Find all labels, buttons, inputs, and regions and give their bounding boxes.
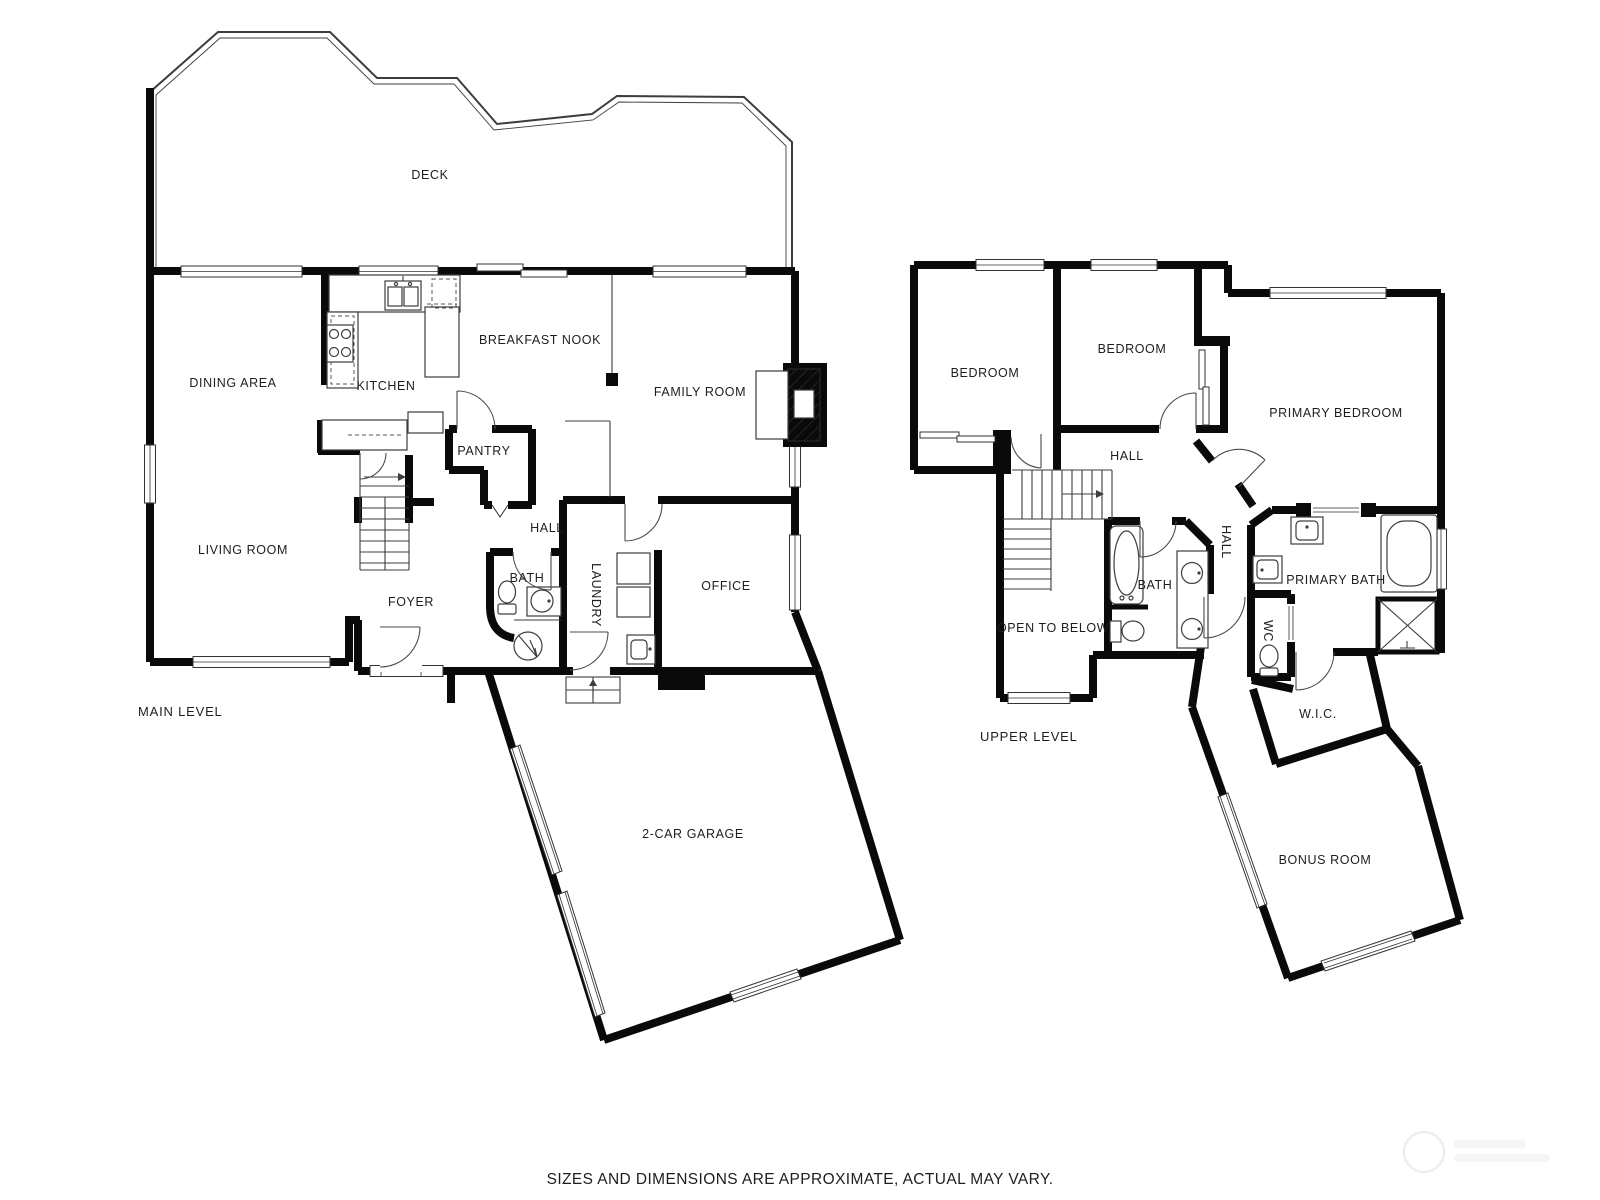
room-label-open-to-below: OPEN TO BELOW bbox=[997, 621, 1109, 635]
room-label-office: OFFICE bbox=[701, 579, 750, 593]
window-bonus-bottom bbox=[1321, 931, 1415, 971]
footer-disclaimer: SIZES AND DIMENSIONS ARE APPROXIMATE, AC… bbox=[547, 1171, 1054, 1188]
main-level-walls bbox=[146, 88, 900, 1040]
window-bedroom-middle bbox=[1091, 260, 1157, 271]
stairs-main bbox=[360, 453, 409, 570]
floor-plan-canvas: DECK DINING AREA KITCHEN BREAKFAST NOOK … bbox=[0, 0, 1600, 1200]
room-label-breakfast-nook: BREAKFAST NOOK bbox=[479, 333, 601, 347]
room-label-hall-lower: HALL bbox=[1219, 525, 1233, 559]
main-level-plan: DECK DINING AREA KITCHEN BREAKFAST NOOK … bbox=[138, 32, 900, 1040]
room-label-bedroom-left: BEDROOM bbox=[951, 366, 1020, 380]
hall-corridor-door bbox=[1204, 597, 1245, 638]
bath-upper-door bbox=[1140, 521, 1176, 557]
room-label-wic: W.I.C. bbox=[1299, 707, 1337, 721]
window-garage bbox=[730, 969, 801, 1002]
dryer bbox=[617, 587, 650, 617]
upper-level-title: UPPER LEVEL bbox=[980, 729, 1078, 744]
stairs-down-arrow bbox=[1096, 490, 1104, 498]
room-label-primary-bedroom: PRIMARY BEDROOM bbox=[1269, 406, 1403, 420]
room-label-garage: 2-CAR GARAGE bbox=[642, 827, 744, 841]
room-label-primary-bath: PRIMARY BATH bbox=[1286, 573, 1386, 587]
stairs-upper bbox=[1003, 470, 1112, 591]
room-label-wc: WC bbox=[1261, 620, 1275, 642]
watermark bbox=[1404, 1132, 1550, 1172]
garage-steps bbox=[566, 677, 620, 703]
deck-outline bbox=[150, 32, 792, 268]
room-label-bonus-room: BONUS ROOM bbox=[1279, 853, 1372, 867]
room-label-bath-upper: BATH bbox=[1138, 578, 1173, 592]
pantry-door bbox=[457, 391, 495, 429]
closet-bedroom-left bbox=[920, 432, 995, 442]
garage-entry-door bbox=[570, 632, 608, 670]
room-label-bedroom-middle: BEDROOM bbox=[1098, 342, 1167, 356]
shower bbox=[1378, 599, 1437, 652]
pocket-door-primary-bath bbox=[1311, 504, 1361, 516]
garage-entry-gap bbox=[573, 665, 610, 677]
window-family bbox=[653, 266, 746, 277]
fireplace bbox=[756, 363, 827, 447]
stairs-up-arrow bbox=[398, 473, 406, 481]
room-label-living-room: LIVING ROOM bbox=[198, 543, 288, 557]
pocket-door-wc bbox=[1286, 604, 1297, 642]
primary-bedroom-door bbox=[1212, 449, 1265, 487]
main-level-title: MAIN LEVEL bbox=[138, 704, 223, 719]
kitchen-fixtures bbox=[322, 275, 460, 450]
wc-toilet bbox=[1260, 645, 1278, 667]
room-label-family-room: FAMILY ROOM bbox=[654, 385, 746, 399]
room-label-bath-main: BATH bbox=[510, 571, 545, 585]
window-living-left bbox=[145, 445, 156, 503]
room-label-dining-area: DINING AREA bbox=[189, 376, 276, 390]
washer bbox=[617, 553, 650, 584]
window-family-right bbox=[790, 445, 801, 487]
floor-plan-page: DECK DINING AREA KITCHEN BREAKFAST NOOK … bbox=[0, 0, 1600, 1200]
laundry-fixtures bbox=[566, 553, 655, 703]
toilet-tank bbox=[1110, 621, 1121, 642]
window-dining bbox=[181, 266, 302, 277]
garage-door-2 bbox=[557, 891, 605, 1017]
water-heater bbox=[514, 620, 561, 660]
room-label-kitchen: KITCHEN bbox=[356, 379, 415, 393]
window-bedroom-left bbox=[976, 260, 1044, 271]
kitchen-island-small bbox=[408, 412, 443, 433]
garage-door-1 bbox=[510, 745, 562, 875]
window-primary-bedroom bbox=[1270, 288, 1386, 299]
kitchen-peninsula bbox=[425, 307, 459, 377]
window-bonus-left bbox=[1218, 793, 1267, 908]
room-label-foyer: FOYER bbox=[388, 595, 434, 609]
pantry-fold-door bbox=[492, 505, 508, 517]
wic-door bbox=[1296, 652, 1334, 690]
bedroom-middle-door bbox=[1160, 393, 1196, 429]
window-open-below bbox=[1008, 693, 1070, 704]
upper-level-plan: BEDROOM BEDROOM PRIMARY BEDROOM HALL HAL… bbox=[914, 260, 1460, 979]
room-label-laundry: LAUNDRY bbox=[589, 563, 603, 627]
interior-lines bbox=[492, 275, 612, 517]
bedroom-left-door bbox=[1011, 434, 1041, 468]
kitchen-sink bbox=[385, 276, 421, 310]
stove bbox=[327, 325, 353, 362]
slider-breakfast-deck bbox=[477, 264, 567, 277]
window-office-right bbox=[790, 535, 801, 610]
stairs-door bbox=[360, 453, 386, 479]
window-living-bottom bbox=[193, 657, 330, 668]
toilet bbox=[1122, 621, 1144, 641]
closet-bedroom-middle bbox=[1199, 350, 1209, 425]
room-label-pantry: PANTRY bbox=[457, 444, 510, 458]
room-label-hall-main: HALL bbox=[530, 521, 564, 535]
room-label-deck: DECK bbox=[411, 168, 448, 182]
room-label-hall-upper: HALL bbox=[1110, 449, 1144, 463]
office-laundry-door bbox=[625, 504, 662, 541]
